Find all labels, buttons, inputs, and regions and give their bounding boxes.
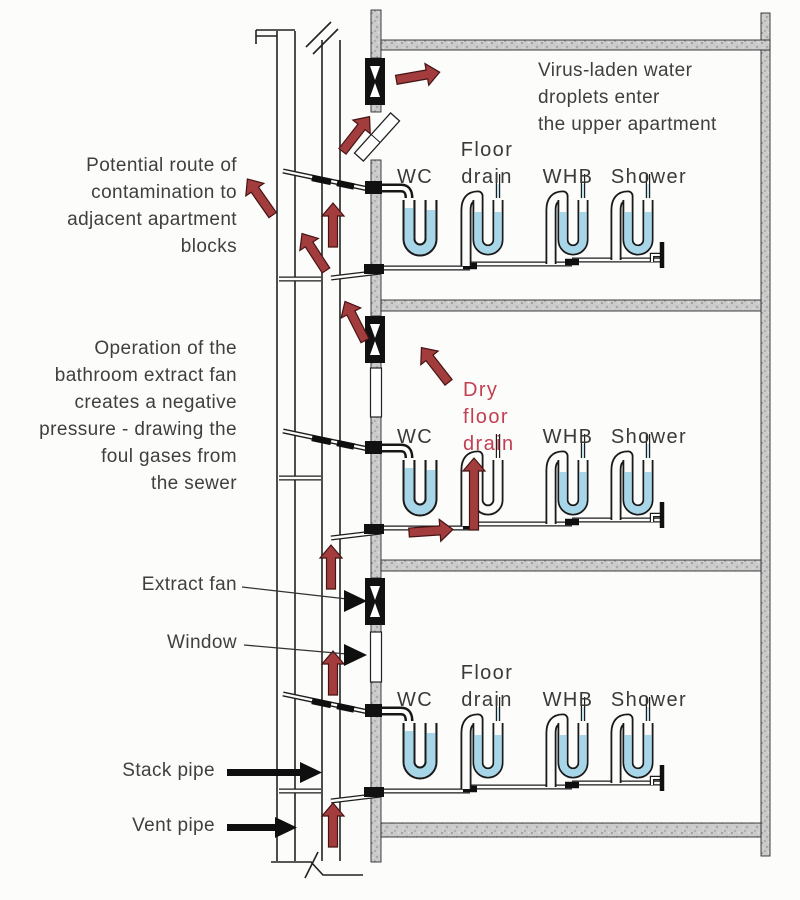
slab-bottom <box>381 823 761 837</box>
contamination-note-line2: contamination to <box>20 182 237 204</box>
dry-floor-drain-label-3: drain <box>463 433 523 456</box>
upper-wc-label: WC <box>390 166 440 189</box>
vent-pipe <box>256 30 295 861</box>
lower-floor-drain-label-1: Floor <box>455 662 519 685</box>
window-pointer <box>344 644 367 666</box>
virus-note-line2: droplets enter <box>538 87 660 109</box>
extract-fan-upper <box>365 58 385 105</box>
vent-pipe-arrow-shaft <box>227 824 278 831</box>
stack-pipe-arrow-head <box>300 762 322 783</box>
upper-shower-label: Shower <box>606 166 692 189</box>
middle-whb-label: WHB <box>536 426 600 449</box>
upper-floor-drain-label-1: Floor <box>455 139 519 162</box>
extract-fan-pointer <box>344 590 367 612</box>
window-middle <box>371 368 382 417</box>
lower-whb-label: WHB <box>536 689 600 712</box>
vent-pipe-label: Vent pipe <box>60 815 215 837</box>
upper-floor-drain-label-2: drain <box>455 166 519 189</box>
fan-operation-note-line2: bathroom extract fan <box>20 365 237 387</box>
window-lower <box>371 632 382 682</box>
fan-operation-note-line6: the sewer <box>20 473 237 495</box>
extract-fan-label: Extract fan <box>100 574 237 596</box>
contamination-note-line3: adjacent apartment <box>20 209 237 231</box>
contamination-note-line1: Potential route of <box>20 155 237 177</box>
fan-operation-note-line1: Operation of the <box>20 338 237 360</box>
plumbing-contamination-diagram: Potential route of contamination to adja… <box>0 0 800 900</box>
fan-operation-note-line5: foul gases from <box>20 446 237 468</box>
arrow-up-stack-mid <box>320 545 342 589</box>
arrow-into-upper-room <box>394 61 441 90</box>
slab-middle-lower <box>381 560 761 571</box>
arrow-along-branch-middle <box>408 518 453 543</box>
pipe-break-bottom <box>271 852 363 878</box>
middle-shower-label: Shower <box>606 426 692 449</box>
stack-pipe-arrow-shaft <box>227 769 303 776</box>
vent-pipe-arrow-head <box>275 817 297 838</box>
right-wall <box>761 13 770 856</box>
arrow-into-middle-room <box>413 341 457 389</box>
lower-shower-label: Shower <box>606 689 692 712</box>
dry-floor-drain-label-2: floor <box>463 406 523 429</box>
virus-note-line1: Virus-laden water <box>538 60 692 82</box>
extract-fan-lower <box>365 578 385 625</box>
middle-wc-label: WC <box>390 426 440 449</box>
slab-upper-middle <box>381 300 761 311</box>
lower-floor-drain-label-2: drain <box>455 689 519 712</box>
upper-whb-label: WHB <box>536 166 600 189</box>
fan-operation-note-line3: creates a negative <box>20 392 237 414</box>
airflow-arrows <box>238 61 485 847</box>
arrow-contamination-route <box>238 173 281 222</box>
lower-wc-label: WC <box>390 689 440 712</box>
contamination-note-line4: blocks <box>20 236 237 258</box>
fan-operation-note-line4: pressure - drawing the <box>20 419 237 441</box>
ceiling-slab-upper <box>381 40 770 50</box>
window-label: Window <box>100 632 237 654</box>
dry-floor-drain-label-1: Dry <box>463 379 523 402</box>
stack-pipe-label: Stack pipe <box>60 760 215 782</box>
virus-note-line3: the upper apartment <box>538 114 717 136</box>
